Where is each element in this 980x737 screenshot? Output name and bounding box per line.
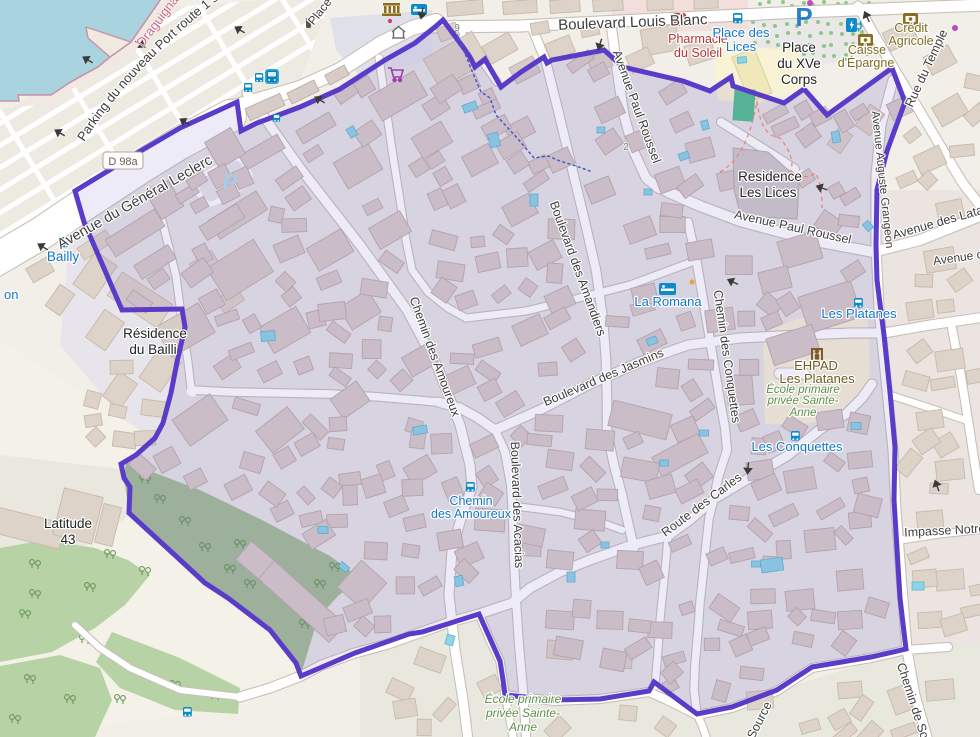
svg-text:d'Épargne: d'Épargne <box>838 55 895 70</box>
svg-text:Anne: Anne <box>789 407 817 419</box>
svg-text:Les Platanes: Les Platanes <box>821 306 897 321</box>
svg-text:La Romana: La Romana <box>634 294 702 309</box>
svg-text:Corps: Corps <box>781 72 817 87</box>
svg-text:privée Sainte-: privée Sainte- <box>485 706 560 720</box>
svg-text:Crédit: Crédit <box>894 21 928 35</box>
svg-text:Residence: Residence <box>738 169 802 184</box>
svg-text:École primaire: École primaire <box>485 691 562 706</box>
svg-text:9: 9 <box>454 23 460 34</box>
svg-text:Place: Place <box>782 40 816 55</box>
svg-text:Résidence: Résidence <box>123 326 187 341</box>
svg-text:Bailly: Bailly <box>47 249 80 264</box>
svg-text:du Bailli: du Bailli <box>129 342 176 357</box>
svg-text:2: 2 <box>623 142 629 153</box>
svg-text:des Amoureux: des Amoureux <box>431 507 512 521</box>
svg-text:on: on <box>4 287 18 302</box>
svg-text:Caisse: Caisse <box>848 43 886 57</box>
svg-text:Les Lices: Les Lices <box>739 185 796 200</box>
svg-text:Place des: Place des <box>712 25 770 40</box>
svg-text:P: P <box>795 2 812 32</box>
svg-text:P: P <box>223 170 238 195</box>
svg-text:Anne: Anne <box>508 720 537 734</box>
svg-text:Agricole: Agricole <box>888 34 933 48</box>
svg-text:du Soleil: du Soleil <box>674 46 722 60</box>
svg-text:Lices: Lices <box>726 39 757 54</box>
svg-text:Chemin: Chemin <box>449 494 492 508</box>
svg-text:D 98a: D 98a <box>108 156 138 168</box>
svg-text:privée Sainte-: privée Sainte- <box>767 395 839 407</box>
svg-text:du XVe: du XVe <box>777 56 821 71</box>
svg-text:Latitude: Latitude <box>44 516 92 531</box>
svg-text:43: 43 <box>60 532 75 547</box>
svg-text:Les Conquettes: Les Conquettes <box>751 439 843 454</box>
